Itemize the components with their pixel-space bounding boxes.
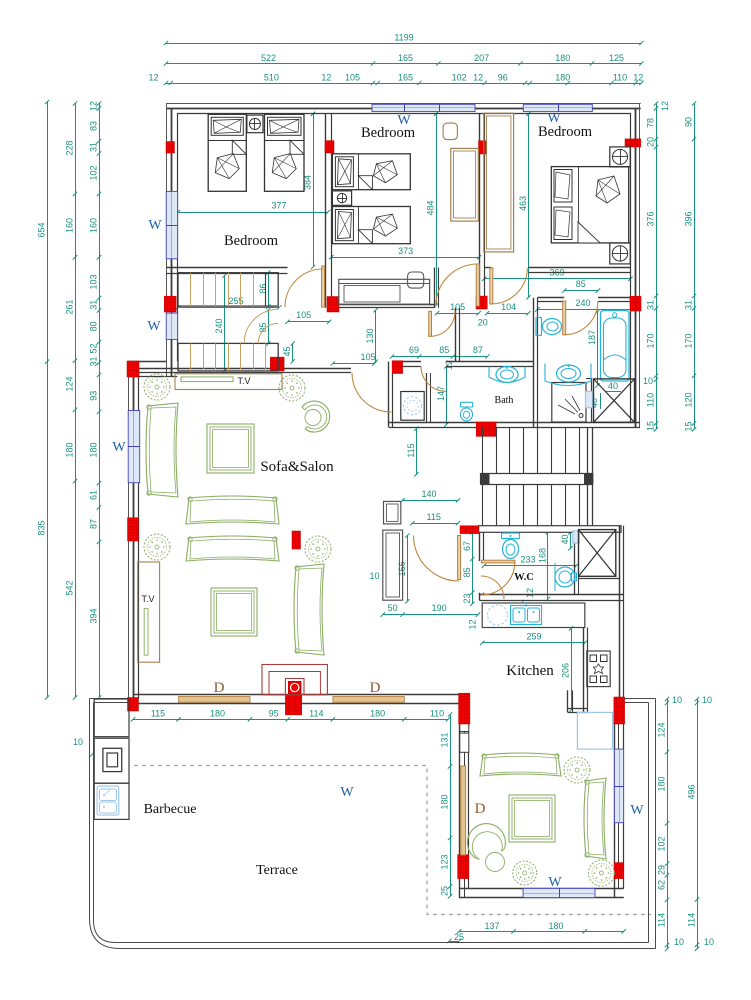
svg-text:Barbecue: Barbecue xyxy=(144,802,197,817)
svg-text:125: 125 xyxy=(609,53,624,63)
svg-text:170: 170 xyxy=(646,333,656,348)
svg-text:496: 496 xyxy=(687,784,697,799)
svg-text:90: 90 xyxy=(684,117,694,127)
svg-text:105: 105 xyxy=(360,352,375,362)
svg-text:87: 87 xyxy=(473,345,483,355)
svg-text:102: 102 xyxy=(89,165,99,180)
svg-text:31: 31 xyxy=(89,142,99,152)
svg-text:10: 10 xyxy=(672,695,682,705)
svg-text:228: 228 xyxy=(65,140,75,155)
svg-text:123: 123 xyxy=(440,854,450,869)
svg-text:78: 78 xyxy=(646,118,656,128)
svg-text:105: 105 xyxy=(345,73,360,83)
svg-text:Bath: Bath xyxy=(495,395,514,406)
svg-text:463: 463 xyxy=(518,196,528,211)
svg-text:D: D xyxy=(370,680,381,696)
svg-text:180: 180 xyxy=(555,73,570,83)
svg-text:T.V: T.V xyxy=(141,594,154,604)
svg-text:12: 12 xyxy=(148,73,158,83)
svg-text:67: 67 xyxy=(462,541,472,551)
svg-text:180: 180 xyxy=(65,442,75,457)
svg-text:233: 233 xyxy=(520,554,535,564)
svg-text:20: 20 xyxy=(478,317,488,327)
svg-text:T.V: T.V xyxy=(237,376,250,386)
svg-text:40: 40 xyxy=(560,534,570,544)
svg-text:114: 114 xyxy=(657,913,667,927)
svg-text:W: W xyxy=(112,440,126,455)
svg-text:168: 168 xyxy=(537,548,547,563)
svg-text:160: 160 xyxy=(89,218,99,233)
svg-text:12: 12 xyxy=(89,101,99,111)
svg-text:Bedroom: Bedroom xyxy=(224,233,279,249)
svg-text:166: 166 xyxy=(397,561,407,576)
svg-text:85: 85 xyxy=(439,345,449,355)
svg-text:207: 207 xyxy=(474,53,489,63)
svg-text:180: 180 xyxy=(89,442,99,457)
svg-text:105: 105 xyxy=(450,302,465,312)
svg-text:Terrace: Terrace xyxy=(256,863,298,878)
svg-text:394: 394 xyxy=(89,608,99,623)
svg-text:W.C: W.C xyxy=(514,572,534,583)
svg-text:105: 105 xyxy=(296,310,311,320)
svg-text:124: 124 xyxy=(657,722,667,737)
svg-text:25: 25 xyxy=(440,886,450,896)
svg-text:165: 165 xyxy=(398,73,413,83)
svg-text:Bedroom: Bedroom xyxy=(538,124,593,140)
svg-text:W: W xyxy=(547,111,561,126)
svg-text:180: 180 xyxy=(555,53,570,63)
svg-text:131: 131 xyxy=(440,732,450,747)
svg-text:96: 96 xyxy=(498,73,508,83)
svg-text:10: 10 xyxy=(702,695,712,705)
svg-text:180: 180 xyxy=(657,776,667,791)
svg-text:187: 187 xyxy=(587,330,597,345)
svg-text:137: 137 xyxy=(484,921,499,931)
svg-text:1199: 1199 xyxy=(394,33,413,43)
svg-text:110: 110 xyxy=(430,709,444,719)
svg-text:104: 104 xyxy=(501,302,516,312)
svg-text:80: 80 xyxy=(89,321,99,331)
svg-text:115: 115 xyxy=(151,709,165,719)
svg-text:180: 180 xyxy=(370,709,385,719)
svg-text:140: 140 xyxy=(421,489,436,499)
svg-text:31: 31 xyxy=(89,300,99,310)
svg-text:31: 31 xyxy=(89,356,99,366)
svg-text:62: 62 xyxy=(657,880,667,890)
svg-text:15: 15 xyxy=(646,421,656,431)
svg-text:110: 110 xyxy=(646,393,656,407)
svg-text:124: 124 xyxy=(65,376,75,391)
svg-text:259: 259 xyxy=(526,632,541,642)
svg-text:W: W xyxy=(630,803,644,818)
svg-text:396: 396 xyxy=(684,211,694,226)
svg-text:12: 12 xyxy=(633,73,643,83)
svg-text:Kitchen: Kitchen xyxy=(506,663,554,679)
svg-text:130: 130 xyxy=(365,328,375,343)
svg-text:510: 510 xyxy=(264,73,279,83)
svg-text:50: 50 xyxy=(388,603,398,613)
svg-text:D: D xyxy=(475,801,486,817)
svg-text:10: 10 xyxy=(643,376,653,386)
svg-text:61: 61 xyxy=(89,490,99,500)
svg-text:31: 31 xyxy=(646,300,656,310)
svg-text:373: 373 xyxy=(398,246,413,256)
svg-text:15: 15 xyxy=(684,421,694,431)
svg-text:85: 85 xyxy=(576,279,586,289)
svg-text:103: 103 xyxy=(89,274,99,289)
svg-text:180: 180 xyxy=(210,709,225,719)
svg-text:835: 835 xyxy=(37,520,47,535)
svg-text:86: 86 xyxy=(258,283,268,293)
svg-text:376: 376 xyxy=(646,211,656,226)
svg-text:240: 240 xyxy=(575,298,590,308)
svg-text:484: 484 xyxy=(426,200,436,215)
svg-text:10: 10 xyxy=(704,937,714,947)
svg-text:12: 12 xyxy=(468,619,478,629)
svg-text:Sofa&Salon: Sofa&Salon xyxy=(260,459,334,475)
svg-text:114: 114 xyxy=(309,709,323,719)
svg-text:206: 206 xyxy=(561,663,571,678)
svg-text:542: 542 xyxy=(65,580,75,595)
svg-text:40: 40 xyxy=(608,381,618,391)
svg-text:110: 110 xyxy=(613,73,627,83)
svg-text:170: 170 xyxy=(684,333,694,348)
svg-text:114: 114 xyxy=(687,913,697,927)
svg-text:93: 93 xyxy=(89,391,99,401)
svg-text:25: 25 xyxy=(454,932,464,942)
svg-text:165: 165 xyxy=(398,53,413,63)
svg-text:255: 255 xyxy=(228,296,243,306)
svg-text:261: 261 xyxy=(65,299,75,314)
svg-text:522: 522 xyxy=(261,53,276,63)
svg-text:85: 85 xyxy=(462,567,472,577)
svg-text:10: 10 xyxy=(369,571,379,581)
svg-text:W: W xyxy=(397,113,411,128)
svg-text:377: 377 xyxy=(271,201,286,211)
svg-text:D: D xyxy=(214,680,225,696)
svg-text:102: 102 xyxy=(452,73,467,83)
svg-text:240: 240 xyxy=(214,318,224,333)
svg-text:20: 20 xyxy=(646,137,656,147)
svg-text:31: 31 xyxy=(684,300,694,310)
svg-text:115: 115 xyxy=(406,443,416,457)
svg-text:160: 160 xyxy=(65,218,75,233)
svg-text:180: 180 xyxy=(440,794,450,809)
svg-text:23: 23 xyxy=(462,593,472,603)
svg-text:120: 120 xyxy=(684,392,694,407)
svg-text:147: 147 xyxy=(436,386,446,401)
svg-text:10: 10 xyxy=(674,937,684,947)
svg-text:W: W xyxy=(148,218,162,233)
svg-text:95: 95 xyxy=(269,709,279,719)
svg-text:190: 190 xyxy=(432,603,447,613)
svg-text:87: 87 xyxy=(89,519,99,529)
svg-text:W: W xyxy=(548,875,562,890)
svg-text:52: 52 xyxy=(89,343,99,353)
svg-text:45: 45 xyxy=(282,346,292,356)
svg-text:115: 115 xyxy=(427,512,441,522)
svg-text:12: 12 xyxy=(660,101,670,111)
svg-text:10: 10 xyxy=(73,737,83,747)
svg-text:69: 69 xyxy=(409,345,419,355)
svg-text:12: 12 xyxy=(525,588,535,598)
svg-text:83: 83 xyxy=(89,121,99,131)
svg-text:12: 12 xyxy=(473,73,483,83)
svg-text:102: 102 xyxy=(657,836,667,851)
svg-text:654: 654 xyxy=(37,222,47,237)
svg-text:29: 29 xyxy=(657,865,667,875)
svg-text:W: W xyxy=(340,785,354,800)
svg-text:W: W xyxy=(147,319,161,334)
svg-text:12: 12 xyxy=(321,73,331,83)
svg-text:180: 180 xyxy=(548,921,563,931)
